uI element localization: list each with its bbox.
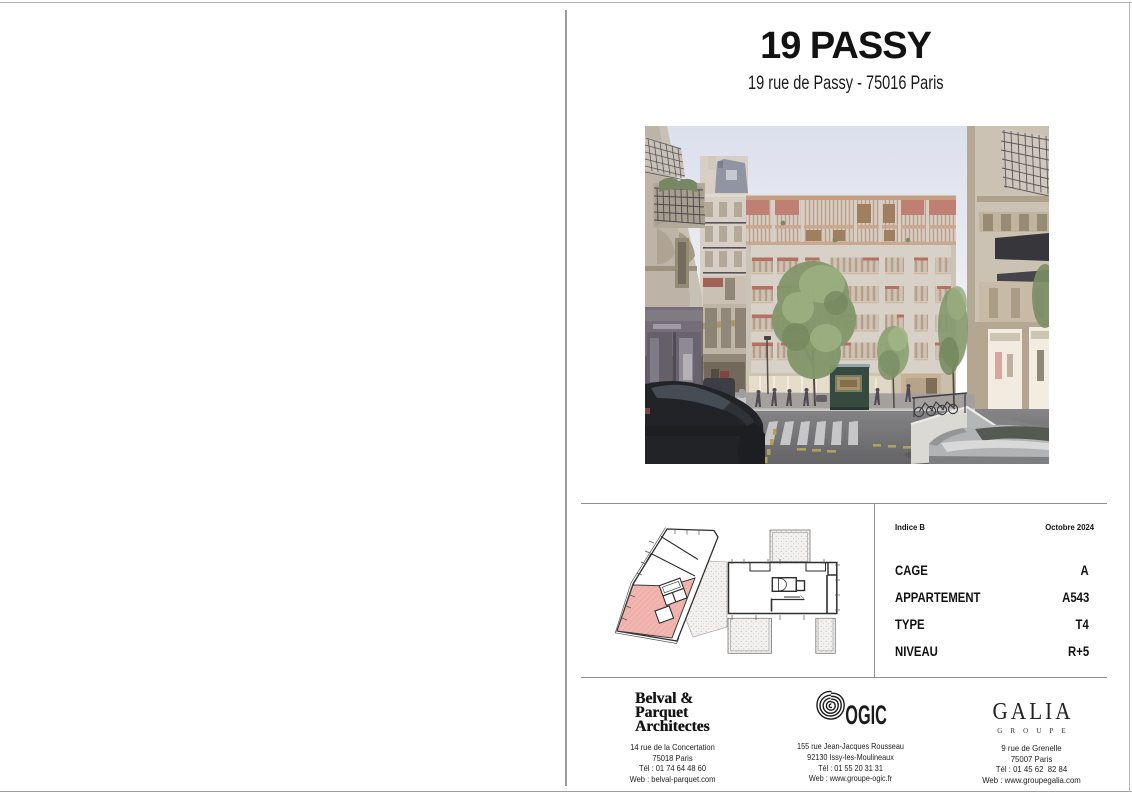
svg-text:OGIC: OGIC	[845, 700, 887, 728]
